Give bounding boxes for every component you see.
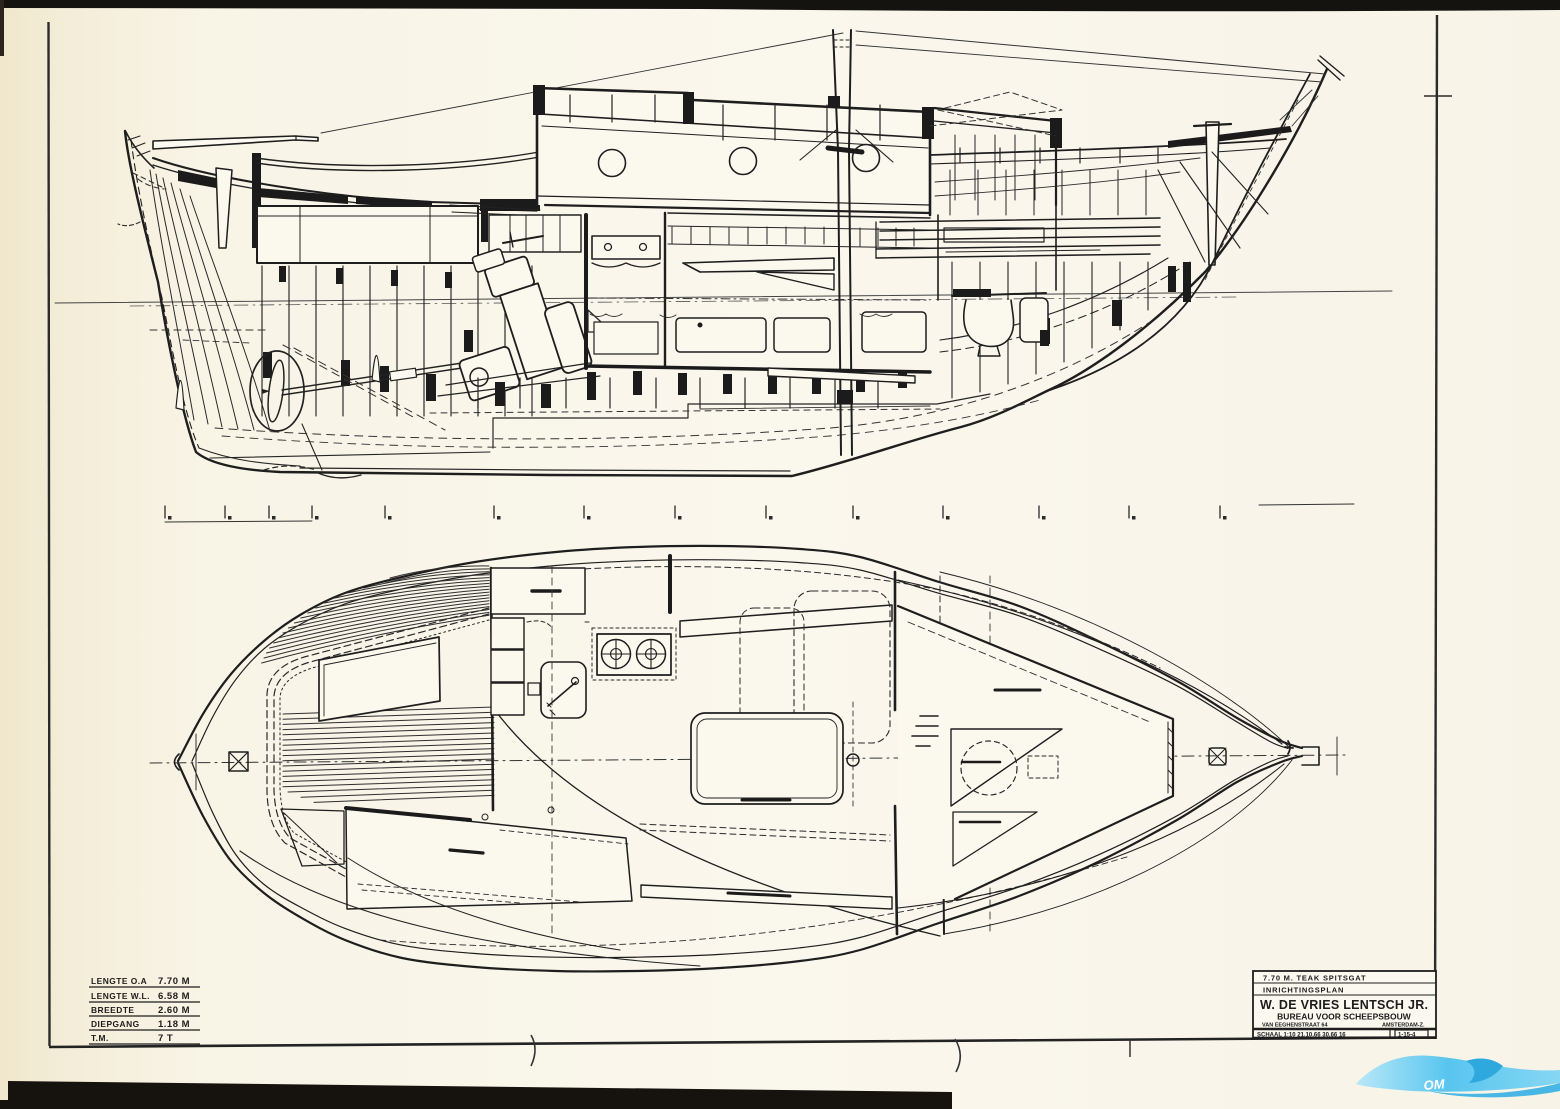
- svg-text:7.70 M. TEAK SPITSGAT: 7.70 M. TEAK SPITSGAT: [1263, 974, 1366, 983]
- svg-text:BUREAU VOOR SCHEEPSBOUW: BUREAU VOOR SCHEEPSBOUW: [1277, 1012, 1412, 1022]
- svg-text:SCHAAL 1:10 21.10.66 30.66: SCHAAL 1:10 21.10.66 30.66 16: [1257, 1033, 1346, 1039]
- svg-text:BREEDTE: BREEDTE: [91, 1005, 135, 1015]
- svg-text:7 T: 7 T: [158, 1033, 173, 1044]
- svg-text:INRICHTINGSPLAN: INRICHTINGSPLAN: [1263, 986, 1344, 995]
- svg-text:LENGTE O.A: LENGTE O.A: [91, 976, 147, 986]
- svg-text:VAN EEGHENSTRAAT 64: VAN EEGHENSTRAAT 64: [1262, 1023, 1328, 1029]
- svg-text:7.70 M: 7.70 M: [158, 976, 190, 987]
- svg-text:1.18 M: 1.18 M: [158, 1019, 190, 1030]
- svg-text:W. DE VRIES LENTSCH JR.: W. DE VRIES LENTSCH JR.: [1260, 998, 1428, 1012]
- svg-text:6.58 M: 6.58 M: [158, 991, 190, 1002]
- svg-text:OM: OM: [1423, 1076, 1446, 1093]
- svg-text:1-15-4: 1-15-4: [1398, 1033, 1416, 1039]
- svg-text:AMSTERDAM-Z.: AMSTERDAM-Z.: [1382, 1023, 1425, 1029]
- svg-text:DIEPGANG: DIEPGANG: [91, 1019, 140, 1029]
- svg-text:T.M.: T.M.: [91, 1033, 109, 1043]
- svg-text:2.60 M: 2.60 M: [158, 1005, 190, 1016]
- svg-text:LENGTE W.L.: LENGTE W.L.: [91, 991, 150, 1001]
